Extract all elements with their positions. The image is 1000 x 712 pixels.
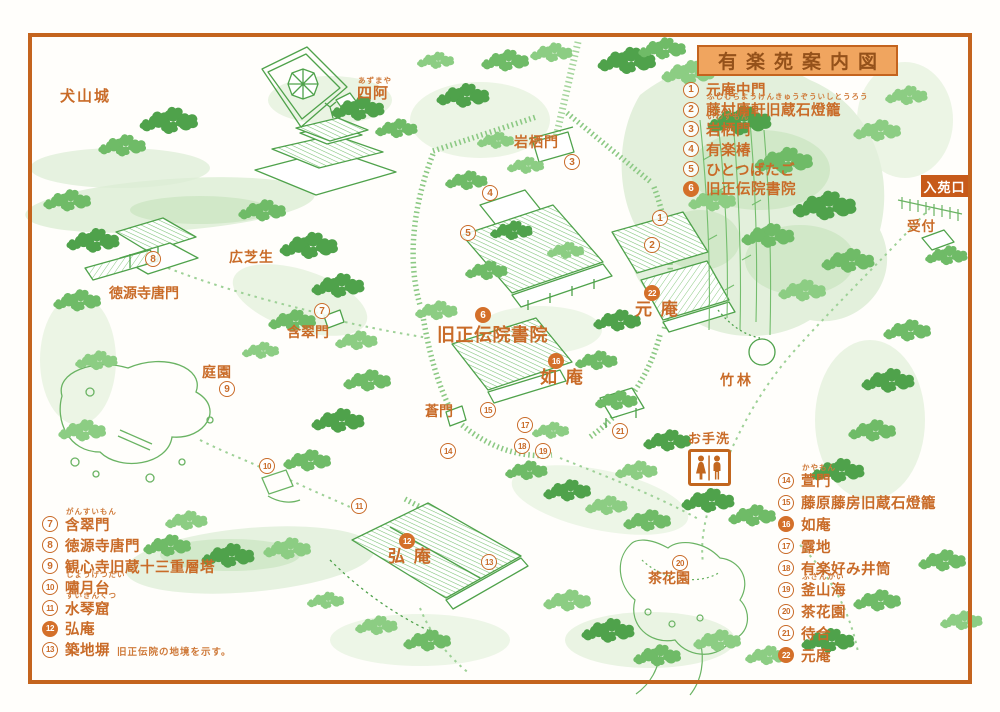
map-label-text: 岩栖門 — [514, 134, 559, 150]
number-circle-11: 11 — [42, 600, 58, 616]
map-marker-16: 16 — [548, 353, 564, 369]
map-marker-7: 7 — [314, 303, 330, 319]
legend-label-14: 萱門かやもん — [801, 470, 831, 491]
legend-item-16: 16如庵 — [778, 514, 936, 536]
furigana: いわずもん — [707, 111, 750, 122]
legend-label-text: 築地塀 — [65, 643, 110, 659]
map-label-ko-an: 弘 庵 — [388, 548, 433, 566]
legend-label-text: 萱門 — [801, 474, 831, 490]
furigana: がんすいもん — [66, 506, 117, 517]
legend-label-19: 釜山海ふざんかい — [801, 579, 846, 600]
map-label-tokugenji-karamon: 徳源寺唐門 — [109, 286, 179, 301]
furigana: ふざんかい — [802, 571, 845, 582]
reception-label: 受付 — [907, 215, 936, 235]
map-label-text: 元 庵 — [635, 300, 680, 319]
legend-label-4: 有楽椿 — [706, 139, 751, 160]
number-circle-19: 19 — [778, 582, 794, 598]
legend-item-6: 6旧正伝院書院 — [683, 179, 841, 199]
map-marker-17: 17 — [517, 417, 533, 433]
restroom-label: お手洗 — [681, 428, 737, 447]
map-marker-2: 2 — [644, 237, 660, 253]
map-label-text: 四阿 — [357, 85, 389, 102]
map-marker-14: 14 — [440, 443, 456, 459]
map-label-chikurin: 竹林 — [720, 373, 754, 388]
legend-item-17: 17露地 — [778, 535, 936, 557]
map-label-iwasu-gate: 岩栖門 — [514, 135, 559, 150]
restroom: お手洗 — [681, 428, 737, 486]
number-circle-1: 1 — [683, 82, 699, 98]
urakuen-guide-map: 有楽苑案内図 1元庵中門2藤村庸軒旧蔵石燈籠ふじむらようけんきゅうぞういしとうろ… — [0, 0, 1000, 712]
number-circle-3: 3 — [683, 121, 699, 137]
legend-item-21: 21待合 — [778, 623, 936, 645]
map-marker-21: 21 — [612, 423, 628, 439]
map-marker-19: 19 — [535, 443, 551, 459]
legend-bottom-left: 7含翠門がんすいもん8徳源寺唐門9観心寺旧蔵十三重層塔10嘯月台しょうげつだい1… — [42, 514, 232, 660]
map-marker-20: 20 — [672, 555, 688, 571]
legend-item-4: 4有楽椿 — [683, 139, 841, 159]
map-label-jo-an: 如 庵 — [540, 369, 585, 387]
furigana: しょうげつだい — [66, 569, 126, 580]
number-circle-9: 9 — [42, 558, 58, 574]
legend-item-7: 7含翠門がんすいもん — [42, 514, 232, 535]
legend-item-11: 11水琴窟すいきんくつ — [42, 598, 232, 619]
map-label-text: 犬山城 — [60, 88, 111, 105]
legend-label-text: 元庵 — [801, 649, 831, 665]
map-label-inuyama-castle: 犬山城 — [60, 89, 111, 105]
number-circle-8: 8 — [42, 537, 58, 553]
map-label-text: 如 庵 — [540, 368, 585, 387]
map-label-text: 庭園 — [202, 364, 232, 380]
legend-item-13: 13築地塀旧正伝院の地境を示す。 — [42, 639, 232, 660]
map-label-ao-gate: 蒼門 — [425, 404, 453, 419]
legend-item-3: 3岩栖門いわずもん — [683, 120, 841, 140]
legend-label-8: 徳源寺唐門 — [65, 535, 140, 556]
restroom-icon — [688, 449, 731, 486]
number-circle-14: 14 — [778, 473, 794, 489]
legend-item-14: 14萱門かやもん — [778, 470, 936, 492]
legend-label-text: 藤原藤房旧蔵石燈籠 — [801, 496, 936, 512]
legend-top-right: 1元庵中門2藤村庸軒旧蔵石燈籠ふじむらようけんきゅうぞういしとうろう3岩栖門いわ… — [683, 80, 841, 199]
number-circle-18: 18 — [778, 560, 794, 576]
map-label-teien: 庭園 — [202, 365, 232, 380]
map-marker-18: 18 — [514, 438, 530, 454]
legend-label-text: 如庵 — [801, 518, 831, 534]
number-circle-17: 17 — [778, 538, 794, 554]
map-label-hiro-shibafu: 広芝生 — [229, 250, 274, 265]
legend-label-text: 岩栖門 — [706, 123, 751, 139]
number-circle-12: 12 — [42, 621, 58, 637]
map-label-text: 蒼門 — [425, 403, 453, 419]
legend-label-7: 含翠門がんすいもん — [65, 514, 110, 535]
furigana: すいきんくつ — [66, 590, 117, 601]
number-circle-10: 10 — [42, 579, 58, 595]
map-marker-13: 13 — [481, 554, 497, 570]
legend-label-15: 藤原藤房旧蔵石燈籠 — [801, 492, 936, 513]
legend-item-12: 12弘庵 — [42, 618, 232, 639]
map-marker-11: 11 — [351, 498, 367, 514]
map-marker-1: 1 — [652, 210, 668, 226]
map-label-text: 含翠門 — [287, 324, 329, 340]
number-circle-20: 20 — [778, 604, 794, 620]
male-female-icon — [692, 454, 726, 482]
number-circle-13: 13 — [42, 642, 58, 658]
map-marker-5: 5 — [460, 225, 476, 241]
legend-label-16: 如庵 — [801, 514, 831, 535]
furigana: かやもん — [802, 462, 836, 473]
number-circle-16: 16 — [778, 516, 794, 532]
map-marker-8: 8 — [145, 251, 161, 267]
legend-label-text: 水琴窟 — [65, 602, 110, 618]
map-marker-9: 9 — [219, 381, 235, 397]
legend-label-20: 茶花園 — [801, 601, 846, 622]
entrance-label: 入苑口 — [923, 177, 965, 196]
legend-label-13: 築地塀旧正伝院の地境を示す。 — [65, 639, 232, 660]
map-title-text: 有楽苑案内図 — [718, 47, 886, 74]
map-label-text: 竹林 — [720, 372, 754, 388]
legend-label-text: 有楽椿 — [706, 143, 751, 159]
legend-label-text: 待合 — [801, 627, 831, 643]
map-label-text: 旧正伝院書院 — [437, 325, 548, 345]
legend-label-12: 弘庵 — [65, 618, 95, 639]
number-circle-22: 22 — [778, 647, 794, 663]
legend-label-11: 水琴窟すいきんくつ — [65, 598, 110, 619]
legend-label-text: 旧正伝院書院 — [706, 182, 796, 198]
map-label-gansui-gate: 含翠門 — [287, 325, 329, 340]
map-label-text: 弘 庵 — [388, 547, 433, 566]
furigana: ふじむらようけんきゅうぞういしとうろう — [707, 91, 869, 102]
map-label-text: 徳源寺唐門 — [109, 285, 179, 301]
legend-label-22: 元庵 — [801, 645, 831, 666]
legend-label-3: 岩栖門いわずもん — [706, 119, 751, 140]
entrance-badge: 入苑口 — [921, 175, 968, 197]
legend-bottom-right: 14萱門かやもん15藤原藤房旧蔵石燈籠16如庵17露地18有楽好み井筒19釜山海… — [778, 470, 936, 666]
legend-item-5: 5ひとつばたご — [683, 159, 841, 179]
legend-label-6: 旧正伝院書院 — [706, 178, 796, 199]
number-circle-21: 21 — [778, 625, 794, 641]
legend-item-15: 15藤原藤房旧蔵石燈籠 — [778, 492, 936, 514]
legend-label-text: 露地 — [801, 540, 831, 556]
number-circle-15: 15 — [778, 495, 794, 511]
number-circle-4: 4 — [683, 141, 699, 157]
map-marker-15: 15 — [480, 402, 496, 418]
number-circle-2: 2 — [683, 102, 699, 118]
map-label-chakaen: 茶花園 — [648, 571, 690, 586]
legend-item-20: 20茶花園 — [778, 601, 936, 623]
map-label-text: 広芝生 — [229, 249, 274, 265]
map-marker-10: 10 — [259, 458, 275, 474]
legend-label-text: 徳源寺唐門 — [65, 539, 140, 555]
map-marker-3: 3 — [564, 154, 580, 170]
number-circle-5: 5 — [683, 161, 699, 177]
legend-label-17: 露地 — [801, 536, 831, 557]
legend-label-5: ひとつばたご — [706, 159, 795, 180]
legend-label-21: 待合 — [801, 623, 831, 644]
furigana: あずまや — [358, 77, 392, 85]
legend-item-22: 22元庵 — [778, 644, 936, 666]
legend-label-text: 釜山海 — [801, 583, 846, 599]
map-label-gen-an: 元 庵 — [635, 301, 680, 319]
map-label-kyu-shodenin-shoin: 旧正伝院書院 — [437, 326, 548, 345]
map-label-azumaya: 四阿あずまや — [357, 86, 389, 102]
legend-item-19: 19釜山海ふざんかい — [778, 579, 936, 601]
legend-label-text: 弘庵 — [65, 622, 95, 638]
legend-label-text: 含翠門 — [65, 518, 110, 534]
number-circle-6: 6 — [683, 181, 699, 197]
map-marker-22: 22 — [644, 285, 660, 301]
number-circle-7: 7 — [42, 516, 58, 532]
map-marker-4: 4 — [482, 185, 498, 201]
legend-item-8: 8徳源寺唐門 — [42, 535, 232, 556]
legend-note-13: 旧正伝院の地境を示す。 — [117, 647, 232, 658]
map-title: 有楽苑案内図 — [697, 45, 898, 76]
legend-label-text: ひとつばたご — [706, 163, 795, 179]
map-marker-6: 6 — [475, 307, 491, 323]
map-label-text: 茶花園 — [648, 570, 690, 586]
legend-label-text: 茶花園 — [801, 605, 846, 621]
